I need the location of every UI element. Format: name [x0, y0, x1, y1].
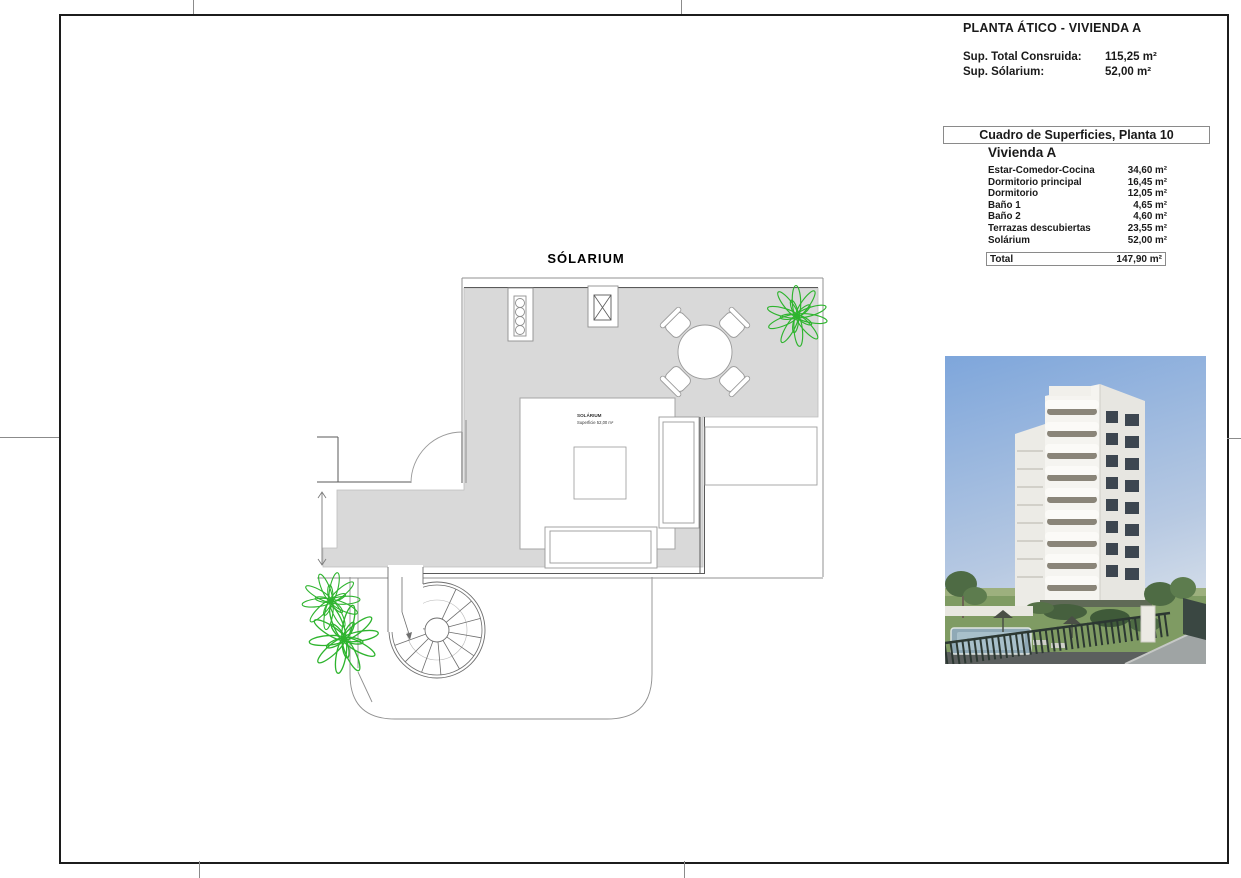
row-label: Dormitorio principal — [988, 177, 1082, 189]
row-value: 4,65 m² — [1133, 200, 1167, 212]
table-row: Solárium52,00 m² — [988, 235, 1167, 247]
gate-pillar — [1141, 606, 1155, 642]
room-label: SOLÁRIUM — [577, 412, 602, 418]
row-value: 12,05 m² — [1128, 188, 1167, 200]
surface-summary: Sup. Total Consruida: 115,25 m² Sup. Sól… — [963, 50, 1213, 80]
summary-label: Sup. Total Consruida: — [963, 50, 1105, 65]
crop-mark-bottom-left — [199, 861, 200, 878]
crop-mark-top-left — [193, 0, 194, 14]
row-label: Terrazas descubiertas — [988, 223, 1091, 235]
row-label: Baño 1 — [988, 200, 1021, 212]
unit-title: Vivienda A — [988, 145, 1056, 160]
summary-row: Sup. Sólarium: 52,00 m² — [963, 65, 1213, 80]
row-label: Estar-Comedor-Cocina — [988, 165, 1095, 177]
sun-lounger — [659, 417, 699, 528]
table-row: Terrazas descubiertas23,55 m² — [988, 223, 1167, 235]
summary-value: 52,00 m² — [1105, 65, 1151, 80]
row-value: 34,60 m² — [1128, 165, 1167, 177]
bench — [545, 527, 657, 568]
row-label: Dormitorio — [988, 188, 1038, 200]
plan-title: SÓLARIUM — [547, 251, 624, 266]
drawing-sheet: { "sheet": { "title": "PLANTA ÁTICO - VI… — [0, 0, 1241, 878]
row-value: 16,45 m² — [1128, 177, 1167, 189]
room-area-label: Superficie 52,00 m² — [577, 420, 614, 425]
roof-hatch — [574, 447, 626, 499]
page-title: PLANTA ÁTICO - VIVIENDA A — [963, 21, 1141, 35]
skylight — [588, 286, 618, 327]
surfaces-table-title: Cuadro de Superficies, Planta 10 — [943, 126, 1210, 144]
side-terrace — [705, 427, 817, 485]
crop-mark-bottom-center — [684, 861, 685, 878]
pool-wall — [945, 606, 1033, 616]
summary-row: Sup. Total Consruida: 115,25 m² — [963, 50, 1213, 65]
table-row: Dormitorio12,05 m² — [988, 188, 1167, 200]
crop-mark-top-center — [681, 0, 682, 14]
table-row: Baño 14,65 m² — [988, 200, 1167, 212]
total-value: 147,90 m² — [1116, 254, 1162, 265]
table-row: Baño 24,60 m² — [988, 211, 1167, 223]
door-swing — [411, 432, 462, 483]
building-photo — [945, 356, 1206, 664]
total-label: Total — [990, 254, 1013, 265]
summary-value: 115,25 m² — [1105, 50, 1157, 65]
row-value: 52,00 m² — [1128, 235, 1167, 247]
row-value: 4,60 m² — [1133, 211, 1167, 223]
far-house — [1183, 598, 1206, 640]
planter — [508, 288, 533, 341]
floor-plan: SÓLARIUM — [290, 240, 850, 740]
surfaces-table: Estar-Comedor-Cocina34,60 m² Dormitorio … — [988, 165, 1167, 246]
row-value: 23,55 m² — [1128, 223, 1167, 235]
table-row: Dormitorio principal16,45 m² — [988, 177, 1167, 189]
crop-mark-right — [1227, 438, 1241, 439]
summary-label: Sup. Sólarium: — [963, 65, 1105, 80]
row-label: Solárium — [988, 235, 1030, 247]
total-row: Total 147,90 m² — [986, 252, 1166, 266]
table-row: Estar-Comedor-Cocina34,60 m² — [988, 165, 1167, 177]
spiral-staircase — [388, 565, 485, 678]
row-label: Baño 2 — [988, 211, 1021, 223]
crop-mark-left — [0, 437, 59, 438]
